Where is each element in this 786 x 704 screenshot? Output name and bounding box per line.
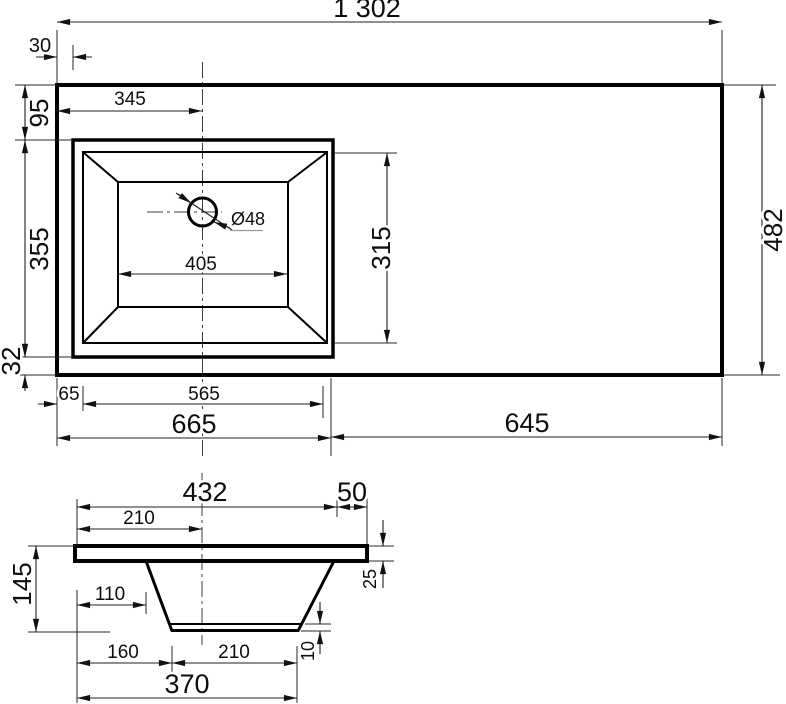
dim-basin-width: 565 xyxy=(188,384,220,405)
dim-overall-width: 1 302 xyxy=(333,0,401,23)
dim-total-height: 145 xyxy=(7,562,37,605)
dim-bowl-base-width: 370 xyxy=(164,669,209,699)
dim-floor-left-offset: 160 xyxy=(107,642,139,663)
dim-floor-width: 405 xyxy=(185,254,217,275)
drawing-sheet: 1 302 30 345 95 355 32 405 Ø48 315 482 6… xyxy=(0,0,786,704)
dim-left-section: 665 xyxy=(171,409,216,439)
basin-slope-edge-bottomright xyxy=(288,307,326,342)
drain-leader-arrow-upper xyxy=(178,194,191,203)
dim-top-margin: 95 xyxy=(24,99,54,128)
dim-center-from-left: 210 xyxy=(123,508,155,529)
dim-right-offset: 50 xyxy=(337,477,367,507)
dim-edge-offset: 30 xyxy=(29,35,51,57)
basin-slope-edge-topleft xyxy=(84,153,118,182)
basin-slope-edge-topright xyxy=(288,153,326,182)
dim-right-section: 645 xyxy=(504,408,549,438)
dim-inner-depth: 315 xyxy=(366,226,396,269)
dim-left-margin: 65 xyxy=(58,384,79,405)
dim-floor-width: 210 xyxy=(218,642,250,663)
dim-drain-center: 345 xyxy=(114,89,146,110)
technical-drawing: 1 302 30 345 95 355 32 405 Ø48 315 482 6… xyxy=(0,0,786,704)
dim-floor-thickness: 10 xyxy=(298,641,318,661)
section-dimension-labels: 432 50 210 110 145 25 10 160 210 370 xyxy=(7,477,380,699)
dim-countertop-depth: 482 xyxy=(758,208,786,251)
dim-slab-thickness: 25 xyxy=(360,569,380,589)
dim-drain-diameter: Ø48 xyxy=(231,209,265,229)
bowl-right-wall xyxy=(298,561,334,631)
basin-slope-edge-bottomleft xyxy=(84,307,118,342)
bowl-left-wall xyxy=(146,561,172,631)
dim-bottom-margin: 32 xyxy=(0,347,26,376)
section-extension-lines xyxy=(28,497,394,703)
section-view: 432 50 210 110 145 25 10 160 210 370 xyxy=(7,473,394,703)
dim-basin-depth: 355 xyxy=(24,227,54,270)
dim-bowl-top-width: 432 xyxy=(182,477,227,507)
top-view: 1 302 30 345 95 355 32 405 Ø48 315 482 6… xyxy=(0,0,786,460)
countertop-slab-section xyxy=(75,546,367,561)
dim-wall-offset: 110 xyxy=(95,584,125,605)
